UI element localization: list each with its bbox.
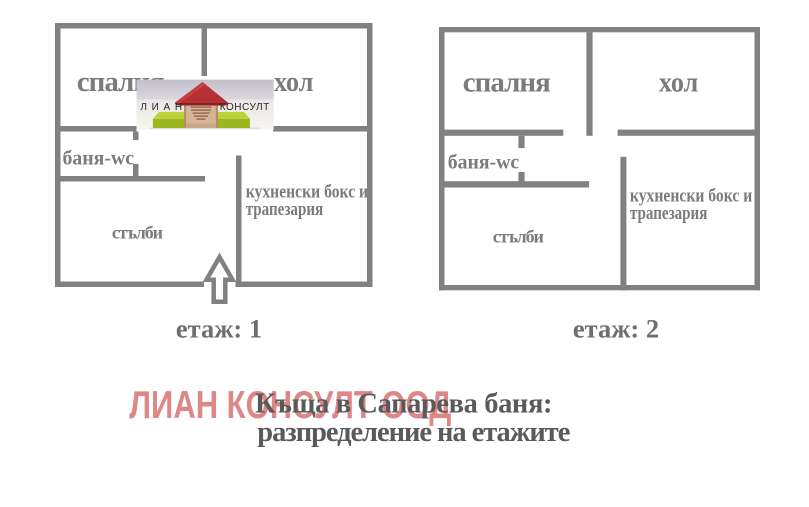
svg-text:спалня: спалня (463, 67, 550, 99)
svg-text:баня-wc: баня-wc (448, 152, 520, 174)
svg-text:стълби: стълби (493, 226, 544, 246)
svg-text:разпределение на етажите: разпределение на етажите (257, 417, 569, 448)
svg-text:трапезария: трапезария (246, 200, 324, 220)
svg-text:баня-wc: баня-wc (63, 147, 135, 169)
svg-text:ЛИАН: ЛИАН (140, 102, 186, 113)
svg-text:хол: хол (659, 67, 699, 99)
svg-text:Къща в Сапарева баня:: Къща в Сапарева баня: (255, 389, 552, 420)
svg-text:КОНСУЛТ: КОНСУЛТ (220, 102, 270, 113)
svg-text:хол: хол (274, 66, 314, 98)
svg-text:етаж: 2: етаж: 2 (573, 314, 659, 344)
svg-text:трапезария: трапезария (630, 204, 708, 224)
svg-text:стълби: стълби (112, 222, 163, 242)
svg-text:етаж: 1: етаж: 1 (176, 314, 262, 344)
